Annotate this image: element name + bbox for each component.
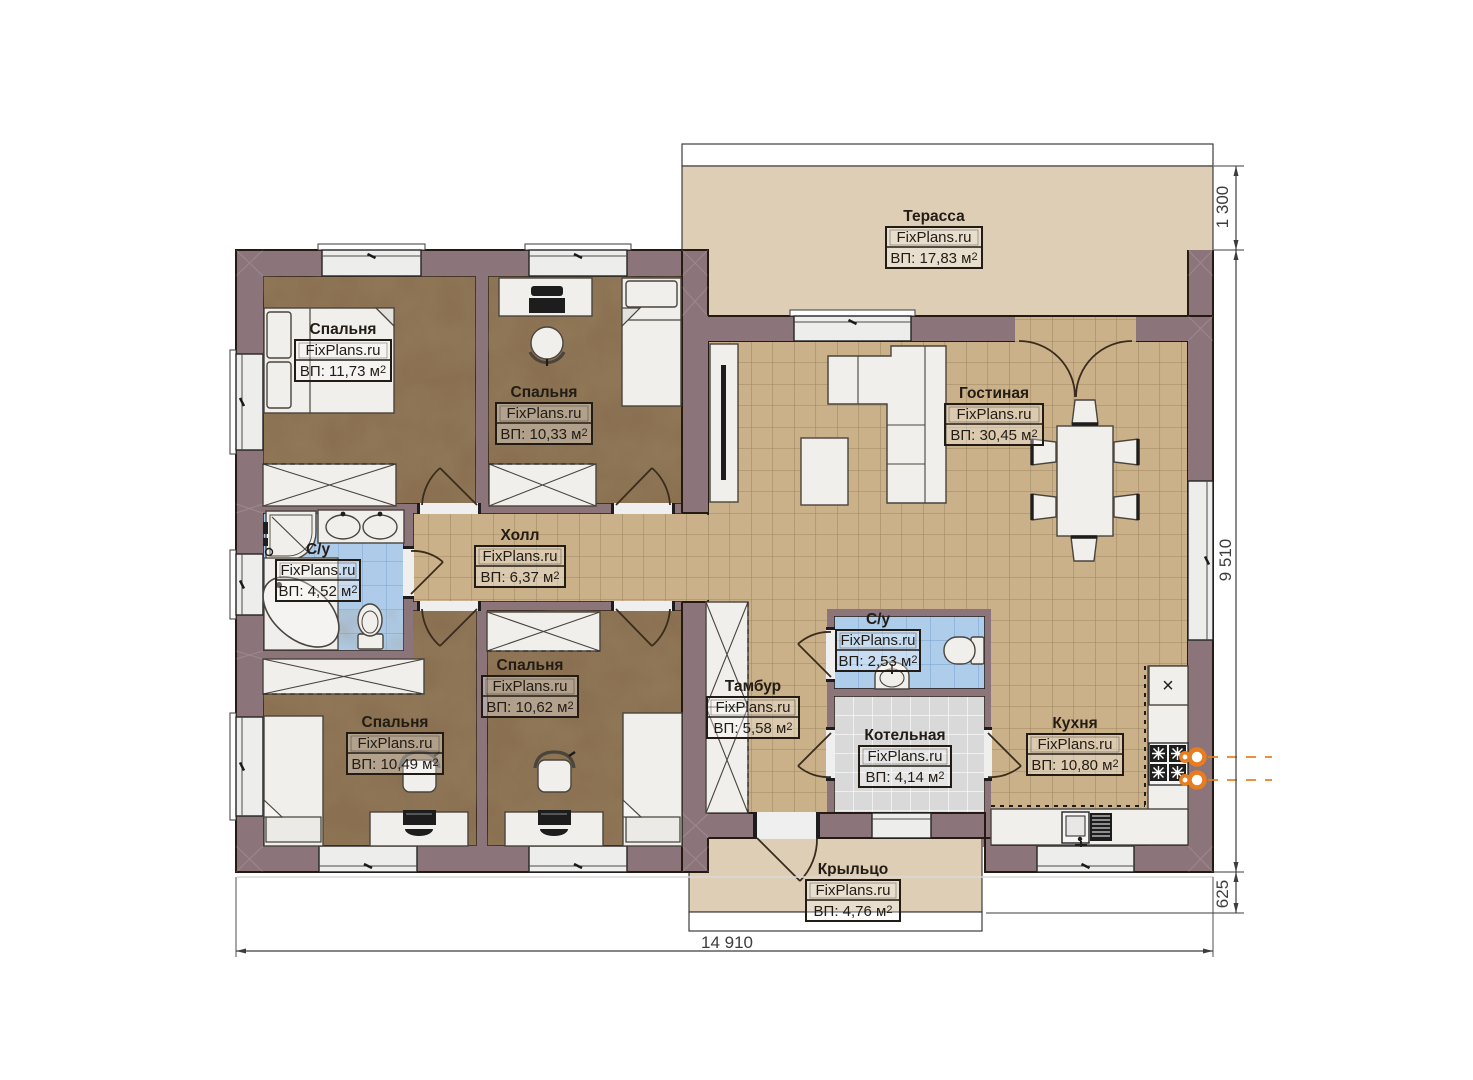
svg-text:×: × xyxy=(1162,675,1174,697)
svg-text:625: 625 xyxy=(1213,880,1232,908)
svg-text:FixPlans.ru: FixPlans.ru xyxy=(715,699,790,716)
svg-text:ВП: 2,53 м2: ВП: 2,53 м2 xyxy=(839,653,918,670)
svg-text:FixPlans.ru: FixPlans.ru xyxy=(956,406,1031,423)
svg-text:ВП: 11,73 м2: ВП: 11,73 м2 xyxy=(300,363,386,380)
svg-text:Холл: Холл xyxy=(501,527,540,544)
svg-text:Крыльцо: Крыльцо xyxy=(818,861,889,878)
svg-text:FixPlans.ru: FixPlans.ru xyxy=(867,748,942,765)
svg-text:Кухня: Кухня xyxy=(1052,715,1097,732)
svg-text:9 510: 9 510 xyxy=(1216,539,1235,582)
svg-text:Гостиная: Гостиная xyxy=(959,385,1029,402)
svg-text:FixPlans.ru: FixPlans.ru xyxy=(305,342,380,359)
svg-text:ВП: 4,76 м2: ВП: 4,76 м2 xyxy=(814,903,893,920)
svg-text:С/у: С/у xyxy=(866,611,891,628)
svg-text:FixPlans.ru: FixPlans.ru xyxy=(280,562,355,579)
svg-text:FixPlans.ru: FixPlans.ru xyxy=(1037,736,1112,753)
svg-text:ВП: 10,49 м2: ВП: 10,49 м2 xyxy=(351,756,438,773)
svg-text:Котельная: Котельная xyxy=(864,727,945,744)
svg-text:Спальня: Спальня xyxy=(310,321,377,338)
svg-text:ВП: 4,52 м2: ВП: 4,52 м2 xyxy=(279,583,358,600)
svg-text:ВП: 30,45 м2: ВП: 30,45 м2 xyxy=(950,427,1037,444)
svg-text:Спальня: Спальня xyxy=(497,657,564,674)
svg-text:FixPlans.ru: FixPlans.ru xyxy=(506,405,581,422)
svg-text:ВП: 4,14 м2: ВП: 4,14 м2 xyxy=(866,769,945,786)
svg-text:С/у: С/у xyxy=(306,541,331,558)
svg-text:ВП: 10,80 м2: ВП: 10,80 м2 xyxy=(1031,757,1118,774)
svg-text:FixPlans.ru: FixPlans.ru xyxy=(482,548,557,565)
svg-text:ВП: 6,37 м2: ВП: 6,37 м2 xyxy=(481,569,560,586)
svg-text:ВП: 5,58 м2: ВП: 5,58 м2 xyxy=(714,720,793,737)
svg-text:FixPlans.ru: FixPlans.ru xyxy=(357,735,432,752)
svg-text:Тамбур: Тамбур xyxy=(725,678,781,695)
svg-text:ВП: 10,33 м2: ВП: 10,33 м2 xyxy=(500,426,587,443)
svg-text:1 300: 1 300 xyxy=(1213,186,1232,229)
svg-text:Терасса: Терасса xyxy=(903,208,965,225)
svg-text:FixPlans.ru: FixPlans.ru xyxy=(840,632,915,649)
svg-text:FixPlans.ru: FixPlans.ru xyxy=(896,229,971,246)
svg-text:14 910: 14 910 xyxy=(701,933,753,952)
svg-text:ВП: 17,83 м2: ВП: 17,83 м2 xyxy=(890,250,977,267)
svg-text:FixPlans.ru: FixPlans.ru xyxy=(815,882,890,899)
svg-text:FixPlans.ru: FixPlans.ru xyxy=(492,678,567,695)
svg-text:Спальня: Спальня xyxy=(362,714,429,731)
svg-text:ВП: 10,62 м2: ВП: 10,62 м2 xyxy=(486,699,573,716)
svg-text:Спальня: Спальня xyxy=(511,384,578,401)
